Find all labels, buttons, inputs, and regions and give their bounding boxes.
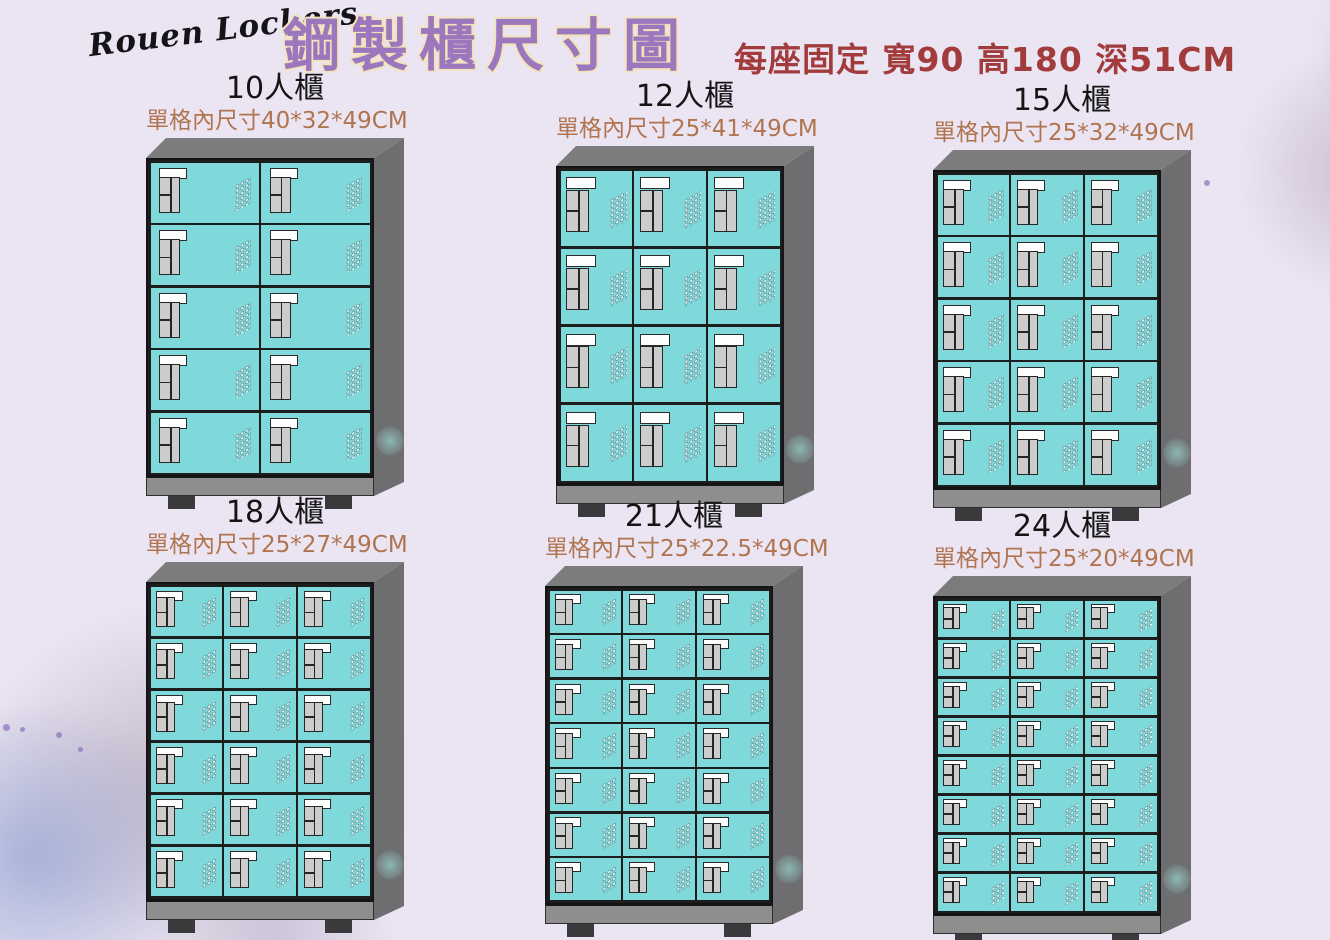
- door-handle: [943, 725, 960, 747]
- door-handle: [270, 427, 291, 463]
- locker-door: [938, 874, 1009, 911]
- locker-door: [151, 795, 222, 845]
- locker-door: [938, 237, 1009, 297]
- paint-dot: [20, 727, 25, 732]
- vent-holes-icon: [276, 648, 291, 680]
- door-handle: [943, 439, 964, 475]
- door-handle: [555, 599, 573, 625]
- locker-door: [1085, 300, 1156, 360]
- locker-door: [697, 680, 768, 722]
- door-handle: [1017, 314, 1038, 350]
- cabinet-side-face: [784, 146, 814, 504]
- vent-holes-icon: [346, 301, 362, 337]
- locker-door: [151, 587, 222, 637]
- locker-door: [298, 847, 369, 897]
- vent-holes-icon: [276, 805, 291, 837]
- vent-holes-icon: [1139, 763, 1152, 788]
- door-handle: [304, 649, 323, 679]
- vent-holes-icon: [1065, 607, 1078, 632]
- name-plate: [566, 334, 596, 346]
- door-grid: [935, 598, 1159, 913]
- name-plate: [640, 255, 670, 267]
- vent-holes-icon: [988, 313, 1004, 349]
- door-handle: [629, 733, 647, 759]
- vent-holes-icon: [1065, 646, 1078, 671]
- locker-door: [550, 769, 621, 811]
- door-handle: [555, 644, 573, 670]
- locker-door: [634, 249, 705, 325]
- vent-holes-icon: [750, 598, 764, 626]
- door-handle: [1091, 686, 1108, 708]
- locker-door: [697, 858, 768, 900]
- locker-cell-size: 單格內尺寸25*22.5*49CM: [545, 535, 803, 563]
- cabinet-side-face: [374, 562, 404, 920]
- door-grid: [148, 160, 372, 475]
- locker-door: [561, 327, 632, 403]
- locker-door: [1085, 640, 1156, 677]
- door-handle: [230, 858, 249, 888]
- vent-holes-icon: [202, 857, 217, 889]
- paint-dot: [1204, 180, 1210, 186]
- locker-door: [938, 362, 1009, 422]
- vent-holes-icon: [350, 805, 365, 837]
- door-handle: [566, 425, 589, 467]
- locker-cabinet: [146, 562, 404, 934]
- vent-holes-icon: [1062, 438, 1078, 474]
- vent-holes-icon: [350, 596, 365, 628]
- door-handle: [1091, 764, 1108, 786]
- vent-holes-icon: [676, 687, 690, 715]
- locker-door: [623, 858, 694, 900]
- door-handle: [159, 427, 180, 463]
- locker-door: [938, 640, 1009, 677]
- locker-door: [550, 858, 621, 900]
- door-handle: [1017, 764, 1034, 786]
- cabinet-top-face: [146, 138, 404, 158]
- vent-holes-icon: [346, 363, 362, 399]
- locker-door: [261, 288, 369, 348]
- door-handle: [640, 346, 663, 388]
- locker-18: 18人櫃 單格內尺寸25*27*49CM: [146, 496, 404, 934]
- cabinet-foot: [724, 924, 751, 937]
- locker-door: [550, 635, 621, 677]
- door-handle: [156, 649, 175, 679]
- vent-holes-icon: [758, 425, 775, 464]
- locker-door: [151, 288, 259, 348]
- locker-title: 18人櫃: [146, 496, 404, 530]
- vent-holes-icon: [346, 238, 362, 274]
- vent-holes-icon: [350, 753, 365, 785]
- locker-door: [938, 175, 1009, 235]
- locker-door: [1011, 362, 1082, 422]
- name-plate: [714, 255, 744, 267]
- name-plate: [566, 412, 596, 424]
- locker-door: [634, 171, 705, 247]
- locker-door: [938, 300, 1009, 360]
- locker-door: [938, 835, 1009, 872]
- door-handle: [230, 754, 249, 784]
- door-handle: [270, 177, 291, 213]
- door-handle: [703, 823, 721, 849]
- door-handle: [1017, 647, 1034, 669]
- vent-holes-icon: [684, 425, 701, 464]
- name-plate: [714, 334, 744, 346]
- door-handle: [703, 778, 721, 804]
- vent-holes-icon: [1065, 685, 1078, 710]
- door-handle: [159, 177, 180, 213]
- door-handle: [156, 806, 175, 836]
- locker-door: [1085, 874, 1156, 911]
- cabinet-front: [933, 170, 1161, 489]
- vent-holes-icon: [602, 777, 616, 805]
- locker-cell-size: 單格內尺寸25*27*49CM: [146, 531, 404, 559]
- door-handle: [304, 858, 323, 888]
- header: Rouen Lockers 鋼製櫃尺寸圖 每座固定 寬90 高180 深51CM: [0, 0, 1330, 80]
- vent-holes-icon: [988, 188, 1004, 224]
- locker-door: [224, 847, 295, 897]
- door-handle: [1091, 803, 1108, 825]
- door-handle: [943, 376, 964, 412]
- vent-holes-icon: [610, 347, 627, 386]
- locker-door: [1011, 237, 1082, 297]
- locker-door: [261, 350, 369, 410]
- locker-door: [550, 591, 621, 633]
- vent-holes-icon: [758, 268, 775, 307]
- locker-door: [151, 691, 222, 741]
- vent-holes-icon: [276, 700, 291, 732]
- locker-cabinet: [556, 146, 814, 518]
- cabinet-base: [146, 477, 374, 496]
- locker-door: [634, 405, 705, 481]
- door-handle: [943, 803, 960, 825]
- vent-holes-icon: [988, 375, 1004, 411]
- vent-holes-icon: [610, 190, 627, 229]
- vent-holes-icon: [676, 777, 690, 805]
- vent-holes-icon: [1062, 375, 1078, 411]
- door-handle: [1091, 647, 1108, 669]
- locker-door: [1011, 757, 1082, 794]
- door-handle: [1017, 842, 1034, 864]
- locker-door: [708, 405, 779, 481]
- vent-holes-icon: [676, 821, 690, 849]
- vent-holes-icon: [750, 643, 764, 671]
- vent-holes-icon: [1062, 250, 1078, 286]
- locker-cabinet: [933, 576, 1191, 940]
- door-grid: [148, 584, 372, 899]
- locker-door: [623, 680, 694, 722]
- cabinet-side-face: [773, 566, 803, 924]
- vent-holes-icon: [991, 646, 1004, 671]
- door-handle: [1017, 725, 1034, 747]
- cabinet-side-face: [1161, 150, 1191, 508]
- door-grid: [558, 168, 782, 483]
- door-handle: [230, 806, 249, 836]
- vent-holes-icon: [1136, 188, 1152, 224]
- locker-12: 12人櫃 單格內尺寸25*41*49CM: [556, 80, 814, 518]
- locker-door: [938, 757, 1009, 794]
- locker-door: [623, 769, 694, 811]
- locker-door: [634, 327, 705, 403]
- cabinet-front: [146, 582, 374, 901]
- locker-door: [224, 691, 295, 741]
- door-handle: [943, 881, 960, 903]
- vent-holes-icon: [350, 857, 365, 889]
- vent-holes-icon: [610, 268, 627, 307]
- vent-holes-icon: [750, 732, 764, 760]
- cabinet-front: [556, 166, 784, 485]
- locker-door: [938, 425, 1009, 485]
- locker-door: [151, 163, 259, 223]
- locker-door: [1011, 718, 1082, 755]
- door-handle: [1091, 314, 1112, 350]
- locker-door: [261, 413, 369, 473]
- door-handle: [566, 346, 589, 388]
- locker-door: [151, 350, 259, 410]
- door-handle: [714, 346, 737, 388]
- door-handle: [703, 644, 721, 670]
- vent-holes-icon: [991, 763, 1004, 788]
- vent-holes-icon: [1136, 250, 1152, 286]
- locker-door: [298, 587, 369, 637]
- locker-door: [938, 796, 1009, 833]
- locker-door: [697, 814, 768, 856]
- vent-holes-icon: [1136, 438, 1152, 474]
- locker-door: [151, 847, 222, 897]
- locker-door: [261, 225, 369, 285]
- door-handle: [270, 302, 291, 338]
- vent-holes-icon: [750, 866, 764, 894]
- door-handle: [156, 702, 175, 732]
- locker-door: [708, 327, 779, 403]
- cabinet-top-face: [933, 576, 1191, 596]
- door-handle: [714, 190, 737, 232]
- locker-door: [550, 680, 621, 722]
- cabinet-front: [545, 586, 773, 905]
- door-handle: [629, 599, 647, 625]
- locker-door: [298, 795, 369, 845]
- locker-door: [298, 691, 369, 741]
- door-handle: [703, 733, 721, 759]
- locker-door: [1011, 300, 1082, 360]
- cabinet-side-face: [1161, 576, 1191, 934]
- locker-door: [697, 591, 768, 633]
- paint-dot: [78, 747, 83, 752]
- door-grid: [935, 172, 1159, 487]
- door-handle: [1091, 439, 1112, 475]
- door-handle: [159, 364, 180, 400]
- door-handle: [943, 647, 960, 669]
- door-handle: [1017, 376, 1038, 412]
- door-handle: [629, 867, 647, 893]
- vent-holes-icon: [684, 347, 701, 386]
- locker-door: [151, 413, 259, 473]
- name-plate: [640, 177, 670, 189]
- cabinet-front: [146, 158, 374, 477]
- vent-holes-icon: [202, 596, 217, 628]
- vent-holes-icon: [1139, 607, 1152, 632]
- locker-door: [1085, 362, 1156, 422]
- door-handle: [629, 689, 647, 715]
- locker-door: [1085, 425, 1156, 485]
- vent-holes-icon: [1136, 313, 1152, 349]
- locker-door: [298, 743, 369, 793]
- vent-holes-icon: [346, 176, 362, 212]
- locker-door: [623, 814, 694, 856]
- vent-holes-icon: [1065, 802, 1078, 827]
- locker-door: [224, 795, 295, 845]
- locker-door: [1011, 425, 1082, 485]
- door-handle: [640, 268, 663, 310]
- door-handle: [1017, 803, 1034, 825]
- vent-holes-icon: [676, 866, 690, 894]
- vent-holes-icon: [235, 176, 251, 212]
- paint-dot: [56, 732, 62, 738]
- locker-door: [1085, 757, 1156, 794]
- locker-door: [550, 814, 621, 856]
- locker-door: [1011, 874, 1082, 911]
- locker-door: [708, 171, 779, 247]
- vent-holes-icon: [276, 596, 291, 628]
- locker-door: [1085, 175, 1156, 235]
- brand-logo: Rouen Lockers: [87, 4, 290, 64]
- vent-holes-icon: [602, 643, 616, 671]
- door-handle: [943, 842, 960, 864]
- door-handle: [304, 806, 323, 836]
- locker-door: [1085, 237, 1156, 297]
- vent-holes-icon: [684, 190, 701, 229]
- cabinet-base: [933, 489, 1161, 508]
- locker-door: [1085, 835, 1156, 872]
- cabinet-side-face: [374, 138, 404, 496]
- locker-door: [938, 718, 1009, 755]
- vent-holes-icon: [602, 866, 616, 894]
- door-handle: [943, 314, 964, 350]
- cabinet-foot: [325, 920, 352, 933]
- door-handle: [156, 597, 175, 627]
- vent-holes-icon: [988, 250, 1004, 286]
- vent-holes-icon: [750, 687, 764, 715]
- door-grid: [547, 588, 771, 903]
- vent-holes-icon: [1065, 841, 1078, 866]
- door-handle: [304, 702, 323, 732]
- cabinet-top-face: [545, 566, 803, 586]
- vent-holes-icon: [276, 753, 291, 785]
- door-handle: [304, 754, 323, 784]
- name-plate: [640, 412, 670, 424]
- door-handle: [629, 644, 647, 670]
- locker-cell-size: 單格內尺寸25*32*49CM: [933, 119, 1191, 147]
- vent-holes-icon: [991, 685, 1004, 710]
- vent-holes-icon: [235, 238, 251, 274]
- locker-door: [1011, 640, 1082, 677]
- door-handle: [1017, 251, 1038, 287]
- vent-holes-icon: [1139, 841, 1152, 866]
- door-handle: [703, 867, 721, 893]
- cabinet-top-face: [146, 562, 404, 582]
- door-handle: [555, 823, 573, 849]
- locker-door: [561, 249, 632, 325]
- door-handle: [159, 239, 180, 275]
- vent-holes-icon: [350, 648, 365, 680]
- door-handle: [304, 597, 323, 627]
- vent-holes-icon: [676, 598, 690, 626]
- door-handle: [1017, 439, 1038, 475]
- locker-door: [224, 639, 295, 689]
- locker-cell-size: 單格內尺寸40*32*49CM: [146, 107, 404, 135]
- locker-door: [224, 587, 295, 637]
- door-handle: [1091, 881, 1108, 903]
- locker-door: [623, 591, 694, 633]
- locker-cell-size: 單格內尺寸25*41*49CM: [556, 115, 814, 143]
- name-plate: [566, 177, 596, 189]
- paint-dot: [3, 724, 10, 731]
- door-handle: [270, 239, 291, 275]
- cabinet-foot: [168, 920, 195, 933]
- vent-holes-icon: [758, 190, 775, 229]
- vent-holes-icon: [991, 724, 1004, 749]
- vent-holes-icon: [602, 732, 616, 760]
- locker-21: 21人櫃 單格內尺寸25*22.5*49CM: [545, 500, 803, 938]
- door-handle: [703, 599, 721, 625]
- cabinet-top-face: [556, 146, 814, 166]
- locker-door: [938, 679, 1009, 716]
- vent-holes-icon: [684, 268, 701, 307]
- vent-holes-icon: [1139, 724, 1152, 749]
- door-handle: [156, 754, 175, 784]
- vent-holes-icon: [1139, 880, 1152, 905]
- door-handle: [943, 686, 960, 708]
- locker-door: [1011, 835, 1082, 872]
- locker-door: [1085, 718, 1156, 755]
- locker-door: [708, 249, 779, 325]
- name-plate: [640, 334, 670, 346]
- locker-door: [623, 635, 694, 677]
- vent-holes-icon: [676, 732, 690, 760]
- locker-door: [224, 743, 295, 793]
- locker-15: 15人櫃 單格內尺寸25*32*49CM: [933, 84, 1191, 522]
- cabinet-base: [545, 905, 773, 924]
- locker-door: [697, 724, 768, 766]
- cabinet-base: [933, 915, 1161, 934]
- vent-holes-icon: [202, 648, 217, 680]
- vent-holes-icon: [202, 700, 217, 732]
- door-handle: [156, 858, 175, 888]
- vent-holes-icon: [602, 687, 616, 715]
- door-handle: [1017, 189, 1038, 225]
- vent-holes-icon: [602, 598, 616, 626]
- locker-door: [151, 743, 222, 793]
- door-handle: [555, 867, 573, 893]
- door-handle: [1091, 607, 1108, 629]
- vent-holes-icon: [991, 607, 1004, 632]
- locker-cabinet: [933, 150, 1191, 522]
- locker-title: 10人櫃: [146, 72, 404, 106]
- cabinet-foot: [567, 924, 594, 937]
- locker-door: [561, 405, 632, 481]
- vent-holes-icon: [346, 426, 362, 462]
- vent-holes-icon: [676, 643, 690, 671]
- door-handle: [703, 689, 721, 715]
- door-handle: [230, 649, 249, 679]
- vent-holes-icon: [350, 700, 365, 732]
- vent-holes-icon: [235, 363, 251, 399]
- vent-holes-icon: [1062, 188, 1078, 224]
- vent-holes-icon: [202, 805, 217, 837]
- page-title: 鋼製櫃尺寸圖: [283, 0, 691, 82]
- door-handle: [943, 251, 964, 287]
- door-handle: [1091, 189, 1112, 225]
- vent-holes-icon: [1139, 802, 1152, 827]
